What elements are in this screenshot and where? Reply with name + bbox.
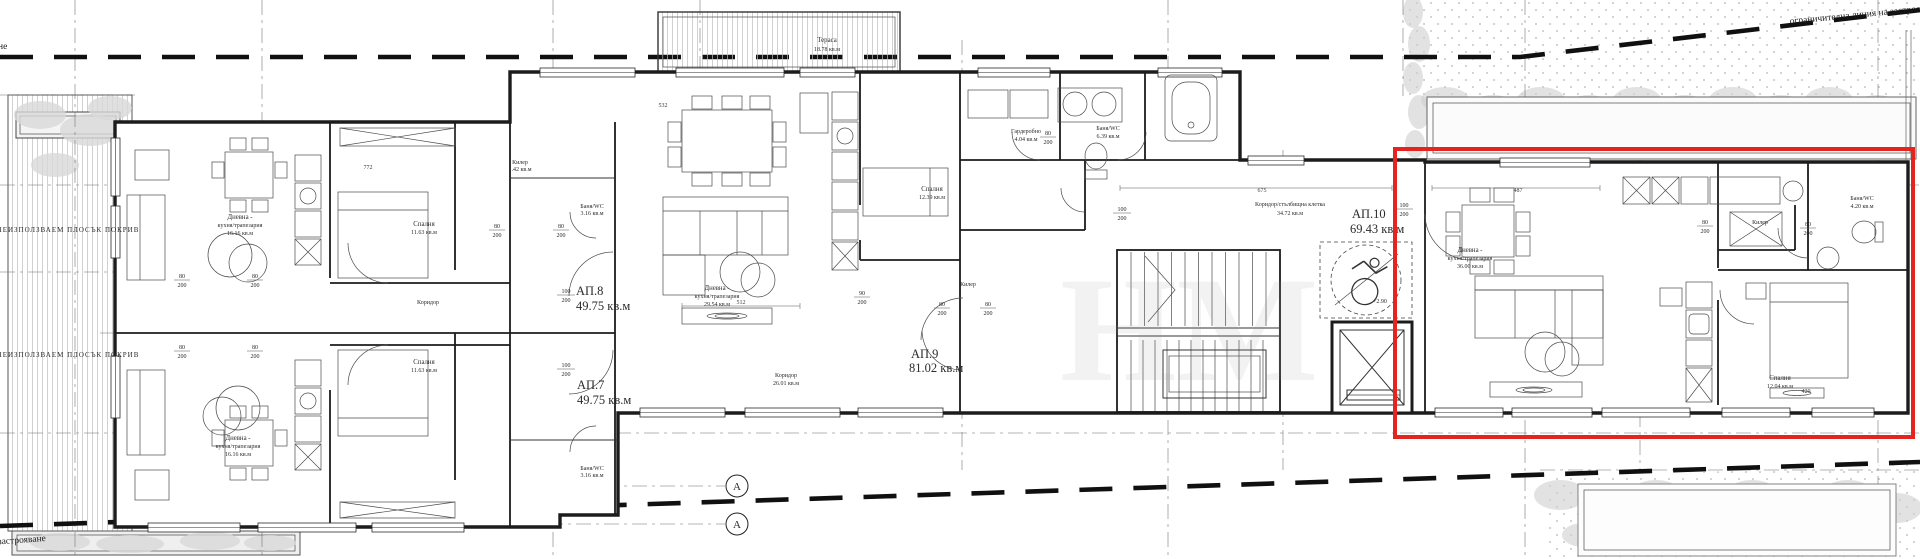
living7-label2: кухня/трапезария	[216, 444, 261, 450]
banya10-label: Баня/WC	[1850, 196, 1873, 202]
living9-label: Дневна -	[704, 285, 730, 292]
banya9-area: 6.39 кв.м	[1096, 134, 1119, 140]
svg-text:100: 100	[562, 363, 571, 369]
svg-text:200: 200	[251, 354, 260, 360]
ap9-area: 81.02 кв.м	[909, 361, 963, 375]
svg-text:80: 80	[179, 274, 185, 280]
dim-772: 772	[364, 165, 373, 171]
svg-text:200: 200	[178, 354, 187, 360]
garderobno-area: 4.04 кв.м	[1014, 137, 1037, 143]
svg-text:200: 200	[562, 372, 571, 378]
top-terrace	[658, 12, 900, 72]
living7-label: Дневна -	[225, 435, 251, 442]
banya8-area: 3.16 кв.м	[580, 211, 603, 217]
terrace-area: 18.78 кв.м	[814, 47, 840, 53]
living9-label2: кухня/трапезария	[695, 294, 740, 300]
floor-plan-screenshot: 675 487 512 772 532 420 80200 80200 8020…	[0, 0, 1920, 559]
bedroom9-area: 12.39 кв.м	[919, 195, 945, 201]
svg-text:80: 80	[985, 302, 991, 308]
dim-420: 420	[1802, 389, 1811, 395]
stair-corridor-area: 34.72 кв.м	[1277, 211, 1303, 217]
svg-text:80: 80	[494, 224, 500, 230]
flat-roof-label-2: НЕИЗПОЛЗВАЕМ ПЛОСЪК ПОКРИВ	[0, 351, 139, 359]
banya9-label: Баня/WC	[1096, 126, 1119, 132]
svg-text:200: 200	[251, 283, 260, 289]
living10-label2: кухня/трапезария	[1448, 256, 1493, 262]
dim-487: 487	[1514, 188, 1523, 194]
ap8-id: АП.8	[576, 284, 603, 298]
ap8-area: 49.75 кв.м	[576, 299, 630, 313]
dim-675: 675	[1258, 188, 1267, 194]
svg-text:80: 80	[252, 345, 258, 351]
section-marks: А А	[726, 475, 748, 535]
ap10-id: АП.10	[1352, 207, 1386, 221]
ap7-area: 49.75 кв.м	[577, 393, 631, 407]
kiler10-label: Килер	[1752, 220, 1768, 226]
banya10-area: 4.20 кв.м	[1850, 204, 1873, 210]
bedroom10-label: Спалня	[1769, 375, 1790, 382]
svg-text:200: 200	[1118, 216, 1127, 222]
elevator-shaft	[1332, 322, 1412, 413]
living7-area: 16.16 кв.м	[225, 452, 251, 458]
svg-text:200: 200	[1044, 140, 1053, 146]
boundary-label-corner: не	[0, 42, 7, 52]
svg-text:80: 80	[1805, 222, 1811, 228]
stair-corridor-label: Коридор/стълбищна клетка	[1255, 201, 1325, 208]
dim-512: 512	[737, 300, 746, 306]
banya7-area: 3.16 кв.м	[580, 473, 603, 479]
svg-text:200: 200	[562, 298, 571, 304]
bedroom7-area: 11.63 кв.м	[411, 368, 437, 374]
svg-text:200: 200	[1400, 212, 1409, 218]
svg-text:80: 80	[1045, 131, 1051, 137]
kiler9-label: Килер	[960, 282, 976, 288]
svg-text:200: 200	[178, 283, 187, 289]
svg-text:80: 80	[558, 224, 564, 230]
bedroom10-area: 12.04 кв.м	[1767, 384, 1793, 390]
section-mark-a1: А	[733, 481, 741, 493]
svg-text:200: 200	[557, 233, 566, 239]
living10-area: 36.00 кв.м	[1457, 264, 1483, 270]
banya8-label: Баня/WC	[580, 204, 603, 210]
svg-text:80: 80	[252, 274, 258, 280]
garderobno-label: Гардеробно	[1011, 128, 1041, 135]
watermark: НМ	[1060, 247, 1318, 413]
svg-text:100: 100	[1400, 203, 1409, 209]
svg-text:200: 200	[858, 300, 867, 306]
svg-text:200: 200	[938, 311, 947, 317]
ap7-id: АП.7	[577, 378, 604, 392]
svg-text:90: 90	[859, 291, 865, 297]
floor-plan-drawing: 675 487 512 772 532 420 80200 80200 8020…	[0, 0, 1920, 559]
svg-text:80: 80	[1702, 220, 1708, 226]
level-mark: +2.90	[1373, 299, 1387, 305]
ap9-id: АП.9	[911, 347, 938, 361]
flat-roof-label-1: НЕИЗПОЛЗВАЕМ ПЛОСЪК ПОКРИВ	[0, 226, 139, 234]
terrace-label: Тераса	[817, 37, 836, 44]
living8-label2: кухня/трапезария	[218, 223, 263, 229]
svg-text:200: 200	[984, 311, 993, 317]
corridor8-label: Коридор	[417, 300, 439, 306]
svg-text:200: 200	[1701, 229, 1710, 235]
bedroom7-label: Спалня	[413, 359, 434, 366]
living8-area: 16.16 кв.м	[227, 231, 253, 237]
living10-label: Дневна -	[1457, 247, 1483, 254]
svg-text:80: 80	[179, 345, 185, 351]
svg-text:200: 200	[493, 233, 502, 239]
dim-532: 532	[659, 103, 668, 109]
corridor9-label: Коридор	[775, 373, 797, 379]
living9-area: 29.54 кв.м	[704, 302, 730, 308]
svg-text:80: 80	[939, 302, 945, 308]
banya7-label: Баня/WC	[580, 466, 603, 472]
svg-text:100: 100	[562, 289, 571, 295]
bedroom9-label: Спалня	[921, 186, 942, 193]
kiler-left-area: 1.42 кв.м	[508, 167, 531, 173]
svg-text:200: 200	[1804, 231, 1813, 237]
corridor9-area: 26.01 кв.м	[773, 381, 799, 387]
svg-text:100: 100	[1118, 207, 1127, 213]
kiler-left-label: Килер	[512, 160, 528, 166]
living8-label: Дневна -	[227, 214, 253, 221]
section-mark-a2: А	[733, 519, 741, 531]
bedroom8-label: Спалня	[413, 221, 434, 228]
bedroom8-area: 11.63 кв.м	[411, 230, 437, 236]
